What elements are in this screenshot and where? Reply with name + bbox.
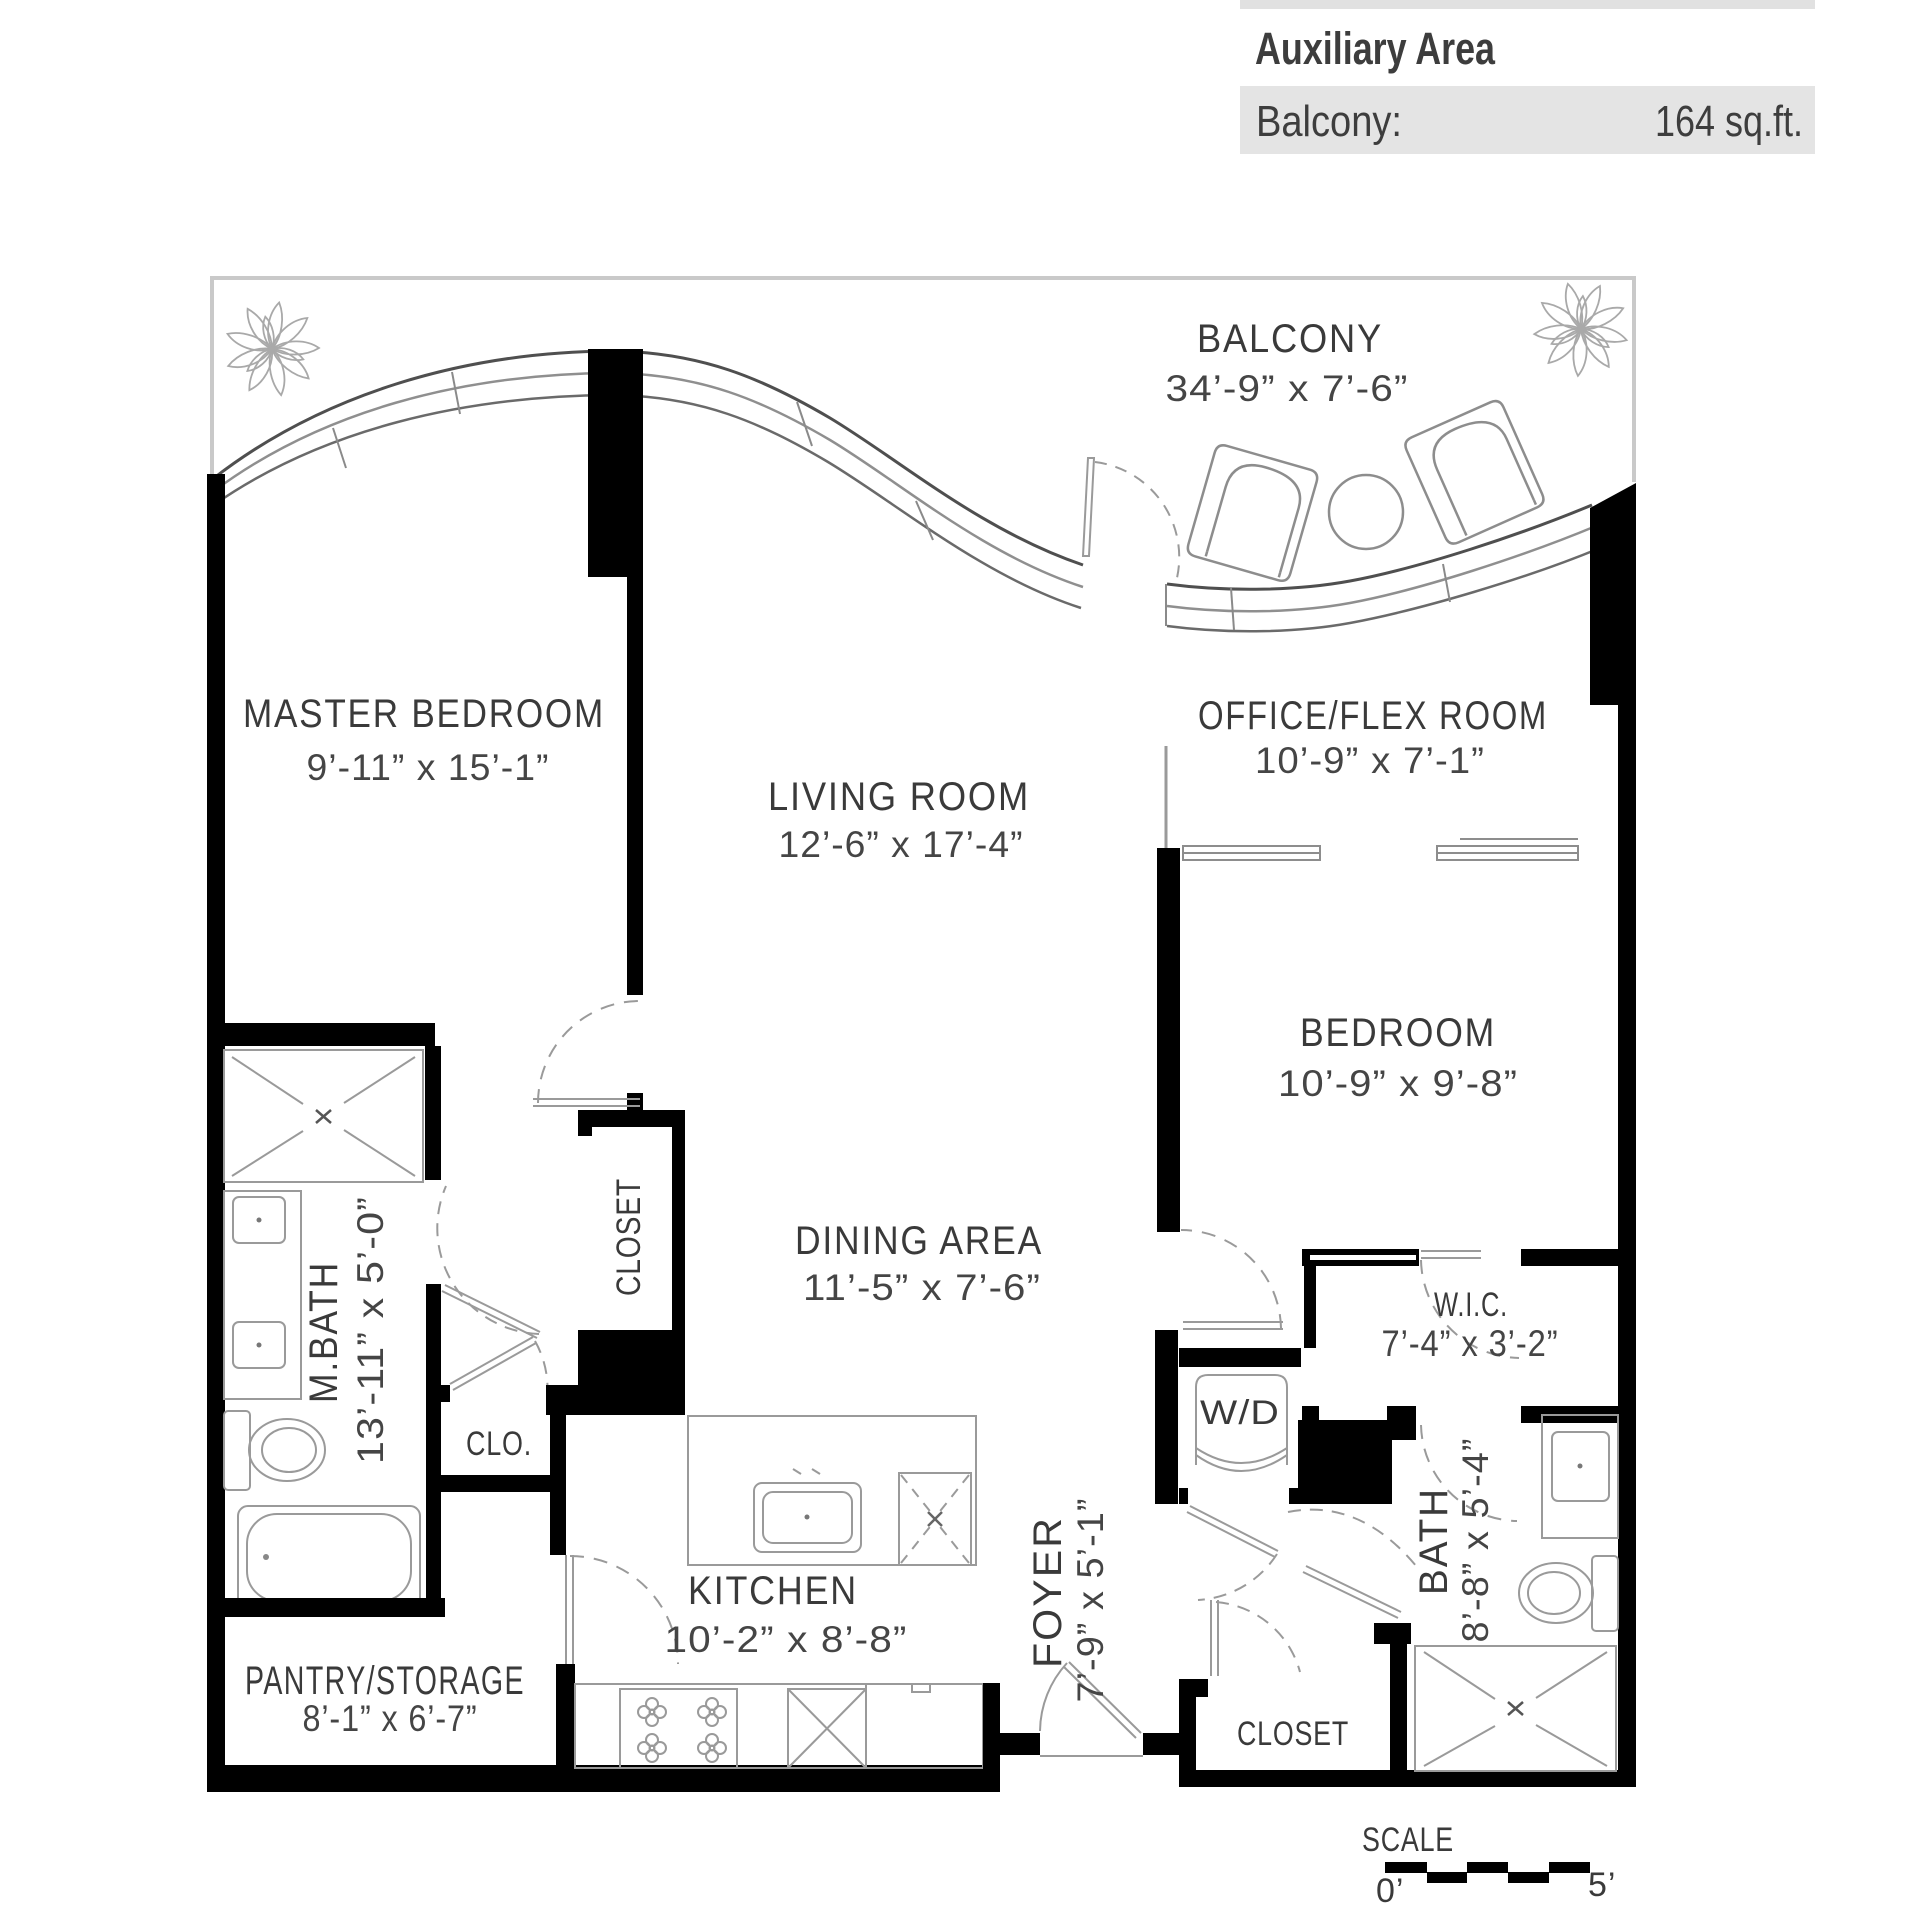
svg-text:5’: 5’ (1588, 1866, 1616, 1904)
svg-text:DINING AREA: DINING AREA (795, 1219, 1043, 1263)
svg-text:PANTRY/STORAGE: PANTRY/STORAGE (245, 1659, 525, 1703)
svg-text:9’-11” x 15’-1”: 9’-11” x 15’-1” (307, 747, 550, 788)
svg-text:M.BATH: M.BATH (302, 1261, 346, 1403)
svg-text:BATH: BATH (1412, 1487, 1456, 1595)
svg-text:10’-9” x 7’-1”: 10’-9” x 7’-1” (1255, 740, 1485, 781)
svg-text:FOYER: FOYER (1026, 1516, 1070, 1668)
svg-text:MASTER BEDROOM: MASTER BEDROOM (243, 692, 605, 736)
svg-text:LIVING ROOM: LIVING ROOM (768, 775, 1030, 819)
svg-text:Auxiliary Area: Auxiliary Area (1255, 23, 1496, 74)
svg-text:10’-9” x 9’-8”: 10’-9” x 9’-8” (1278, 1063, 1518, 1104)
svg-text:Balcony:: Balcony: (1256, 97, 1402, 146)
svg-text:CLO.: CLO. (466, 1425, 532, 1463)
svg-text:8’-1” x 6’-7”: 8’-1” x 6’-7” (303, 1698, 478, 1739)
svg-text:34’-9” x 7’-6”: 34’-9” x 7’-6” (1166, 368, 1409, 409)
svg-text:164 sq.ft.: 164 sq.ft. (1655, 97, 1803, 146)
svg-text:0’: 0’ (1376, 1872, 1404, 1907)
svg-text:7’-9” x 5’-1”: 7’-9” x 5’-1” (1070, 1498, 1111, 1703)
svg-text:8’-8” x 5’-4”: 8’-8” x 5’-4” (1455, 1438, 1496, 1643)
svg-text:11’-5” x 7’-6”: 11’-5” x 7’-6” (803, 1267, 1041, 1308)
svg-text:W.I.C.: W.I.C. (1434, 1286, 1508, 1324)
svg-text:OFFICE/FLEX ROOM: OFFICE/FLEX ROOM (1198, 694, 1548, 738)
svg-text:CLOSET: CLOSET (1237, 1715, 1349, 1753)
svg-text:13’-11” x 5’-0”: 13’-11” x 5’-0” (350, 1196, 391, 1464)
svg-text:CLOSET: CLOSET (610, 1178, 648, 1296)
svg-text:SCALE: SCALE (1362, 1821, 1454, 1859)
svg-text:12’-6” x 17’-4”: 12’-6” x 17’-4” (779, 824, 1024, 865)
svg-text:BALCONY: BALCONY (1197, 317, 1383, 361)
svg-text:10’-2” x 8’-8”: 10’-2” x 8’-8” (665, 1619, 908, 1660)
svg-text:7’-4” x 3’-2”: 7’-4” x 3’-2” (1382, 1323, 1559, 1364)
svg-text:W/D: W/D (1200, 1394, 1280, 1432)
svg-text:BEDROOM: BEDROOM (1300, 1011, 1496, 1055)
svg-text:KITCHEN: KITCHEN (688, 1569, 858, 1613)
